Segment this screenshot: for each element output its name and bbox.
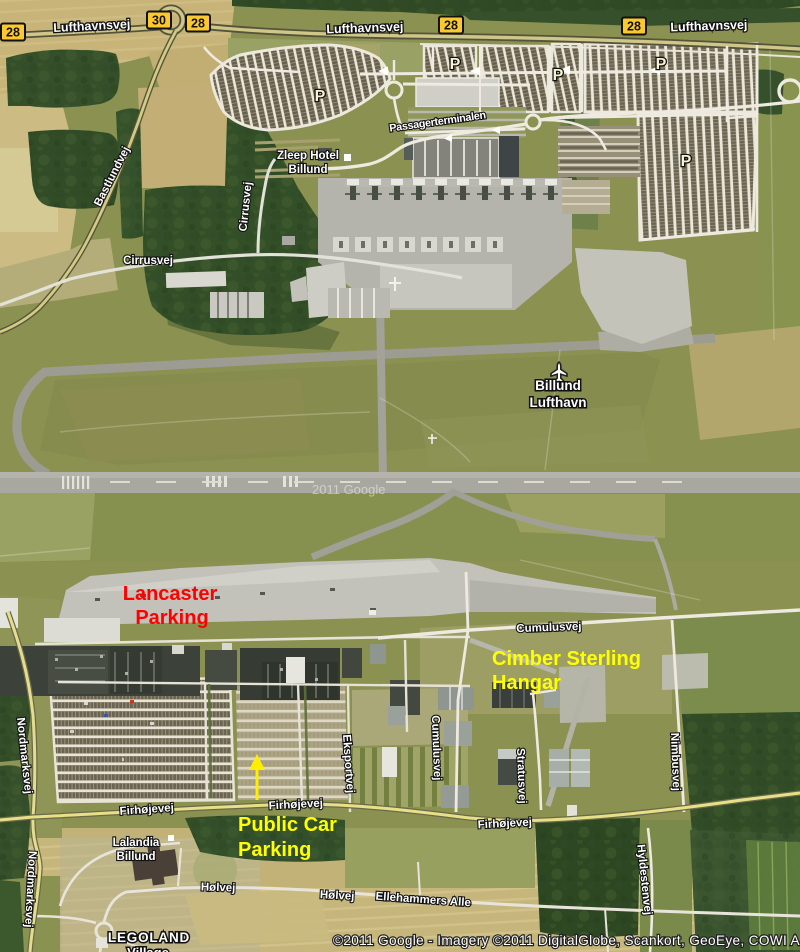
svg-text:Billund: Billund [535, 378, 581, 393]
svg-text:Cumulusvej: Cumulusvej [429, 715, 443, 781]
svg-text:Billund: Billund [289, 164, 328, 176]
svg-text:28: 28 [191, 17, 205, 31]
svg-text:Cimber Sterling: Cimber Sterling [492, 648, 641, 670]
svg-text:30: 30 [152, 14, 166, 28]
svg-text:LEGOLAND: LEGOLAND [108, 930, 190, 945]
svg-text:Stratusvej: Stratusvej [514, 748, 528, 804]
svg-text:28: 28 [444, 19, 458, 33]
svg-text:Cirrusvej: Cirrusvej [123, 255, 173, 267]
svg-text:Village: Village [127, 945, 169, 952]
svg-text:2011 Google: 2011 Google [312, 482, 386, 497]
svg-text:Cumulusvej: Cumulusvej [516, 621, 582, 635]
svg-text:Hangar: Hangar [492, 672, 561, 694]
svg-text:28: 28 [6, 26, 20, 40]
svg-text:Billund: Billund [117, 851, 156, 863]
svg-text:Public Car: Public Car [238, 814, 337, 836]
svg-text:P: P [656, 56, 667, 73]
svg-text:Nimbusvej: Nimbusvej [668, 733, 682, 792]
svg-text:Hølvej: Hølvej [320, 889, 355, 903]
svg-text:©2011 Google - Imagery ©2011 D: ©2011 Google - Imagery ©2011 DigitalGlob… [333, 933, 800, 948]
svg-text:Lancaster: Lancaster [123, 583, 218, 605]
svg-text:P: P [450, 56, 461, 73]
svg-text:Lalandia: Lalandia [113, 837, 160, 849]
svg-text:Lufthavnsvej: Lufthavnsvej [326, 20, 404, 37]
svg-text:Zleep Hotel: Zleep Hotel [277, 150, 339, 162]
svg-text:P: P [681, 153, 692, 170]
svg-text:Lufthavn: Lufthavn [530, 395, 587, 410]
svg-text:P: P [553, 67, 564, 84]
svg-text:P: P [315, 88, 326, 105]
svg-text:Lufthavnsvej: Lufthavnsvej [670, 18, 748, 35]
svg-text:28: 28 [627, 20, 641, 34]
svg-text:Parking: Parking [135, 607, 208, 629]
svg-text:Hølvej: Hølvej [201, 881, 236, 894]
svg-text:Parking: Parking [238, 839, 311, 861]
